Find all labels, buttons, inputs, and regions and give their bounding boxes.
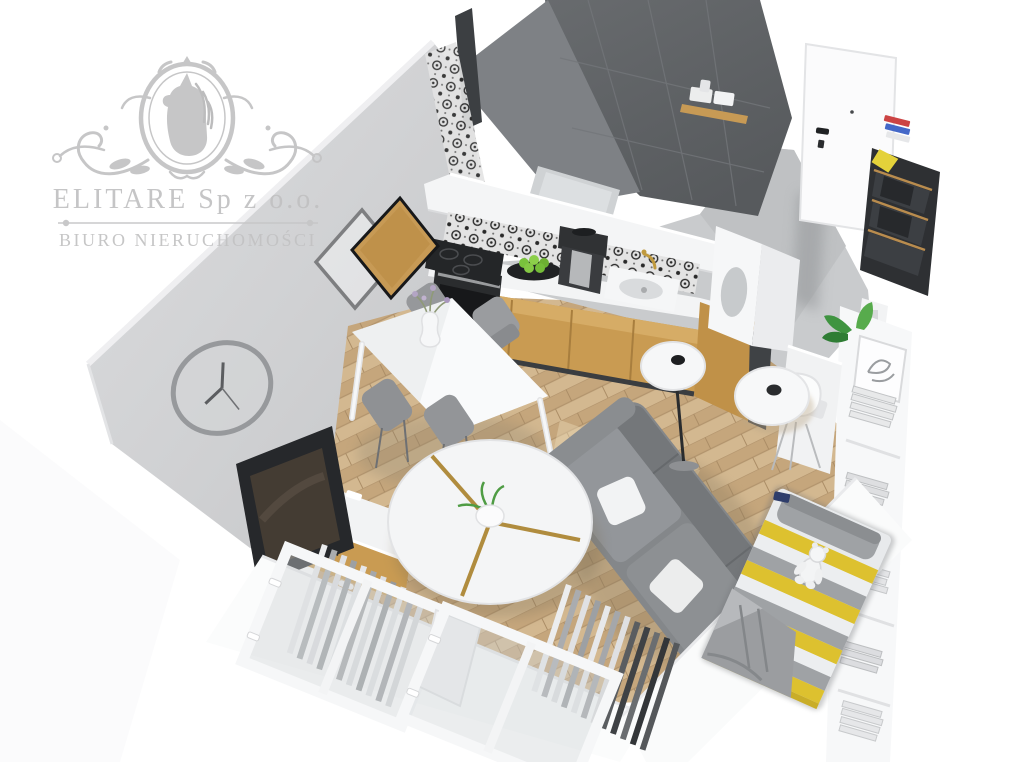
watermark-subtitle: BIURO NIERUCHOMOŚCI bbox=[59, 229, 317, 250]
apartment-render: ELITARE Sp z o.o. BIURO NIERUCHOMOŚCI bbox=[0, 0, 1024, 762]
coffee-machine bbox=[558, 226, 608, 294]
watermark-company: ELITARE Sp z o.o. bbox=[53, 184, 323, 215]
